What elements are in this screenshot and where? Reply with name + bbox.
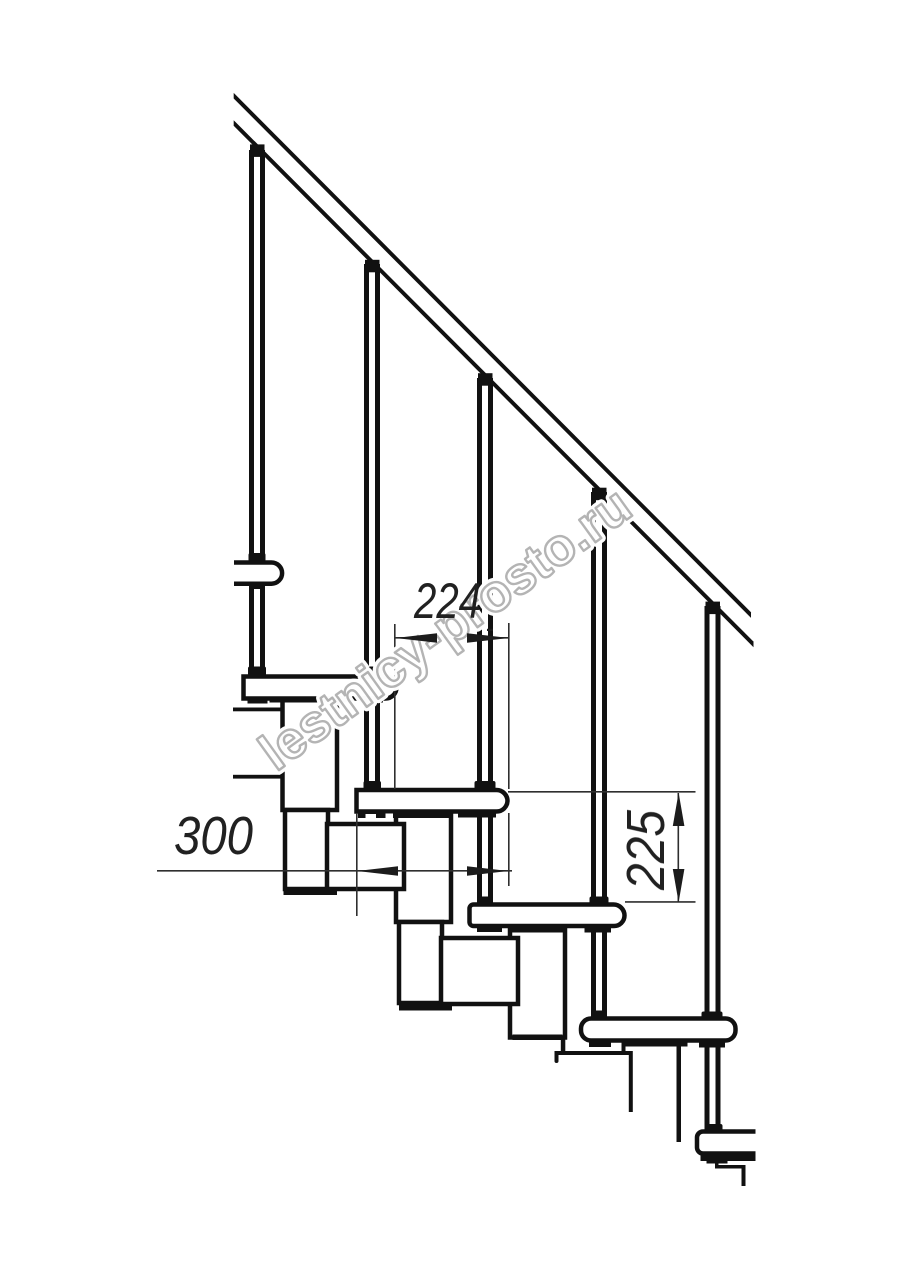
svg-text:225: 225: [615, 809, 675, 891]
svg-text:300: 300: [174, 806, 253, 866]
svg-text:224: 224: [413, 573, 481, 629]
